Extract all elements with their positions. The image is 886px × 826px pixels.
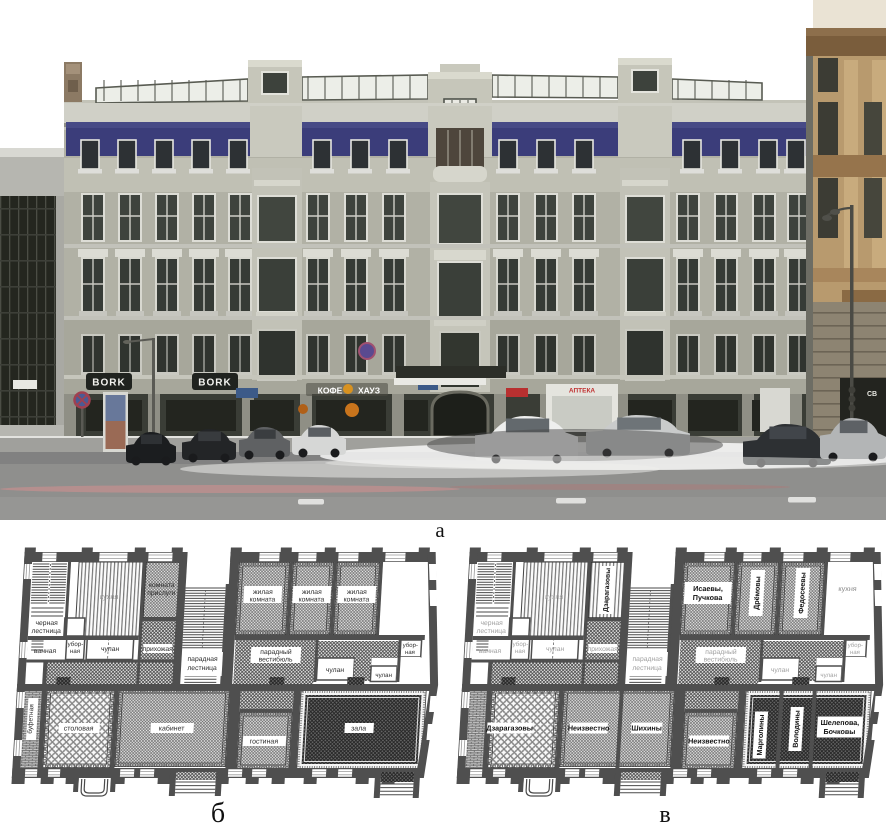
svg-text:ная: ная: [515, 648, 526, 655]
svg-text:комната: комната: [249, 597, 275, 604]
svg-text:лестница: лестница: [476, 628, 506, 635]
svg-text:кабинет: кабинет: [159, 725, 186, 733]
svg-text:чулан: чулан: [771, 667, 790, 674]
svg-text:Исаевы,: Исаевы,: [693, 584, 723, 593]
svg-text:кухня: кухня: [545, 592, 564, 601]
svg-text:кухня: кухня: [100, 592, 119, 601]
svg-text:лестница: лестница: [31, 628, 61, 635]
svg-text:вестибюль: вестибюль: [258, 656, 293, 664]
svg-text:жилая: жилая: [253, 589, 273, 596]
svg-text:черная: черная: [480, 620, 503, 627]
svg-text:прихожая: прихожая: [142, 646, 173, 653]
svg-text:жилая: жилая: [302, 589, 322, 596]
svg-text:убор-: убор-: [67, 641, 83, 648]
svg-text:а: а: [435, 518, 445, 542]
svg-text:ХАУЗ: ХАУЗ: [358, 386, 380, 396]
svg-text:б: б: [211, 798, 225, 826]
svg-text:чулан: чулан: [326, 667, 345, 674]
svg-text:Бочковы: Бочковы: [823, 727, 855, 736]
svg-text:BORK: BORK: [92, 378, 125, 389]
svg-text:Неизвестно: Неизвестно: [568, 724, 611, 733]
svg-text:убор-: убор-: [848, 643, 864, 649]
svg-text:АПТЕКА: АПТЕКА: [569, 388, 596, 395]
svg-text:гостиная: гостиная: [249, 739, 278, 746]
svg-text:Шелепова,: Шелепова,: [820, 718, 859, 727]
svg-text:убор-: убор-: [512, 641, 528, 648]
svg-text:комната: комната: [298, 597, 324, 604]
svg-text:ная: ная: [70, 648, 81, 655]
svg-text:столовая: столовая: [64, 726, 94, 733]
svg-text:BORK: BORK: [198, 378, 231, 389]
svg-text:черная: черная: [35, 620, 58, 627]
svg-text:КОФЕ: КОФЕ: [318, 386, 343, 396]
svg-text:чулан: чулан: [375, 672, 392, 679]
svg-text:кухня: кухня: [838, 584, 857, 593]
svg-text:комната: комната: [343, 597, 369, 604]
svg-text:ная: ная: [405, 650, 415, 656]
svg-text:в: в: [659, 802, 670, 826]
svg-text:зала: зала: [351, 726, 367, 733]
svg-text:комната: комната: [149, 582, 175, 589]
svg-text:прислуги: прислуги: [147, 590, 176, 597]
svg-text:Неизвестно: Неизвестно: [688, 737, 731, 746]
svg-text:лестница: лестница: [632, 665, 662, 672]
svg-text:ванная: ванная: [34, 648, 57, 655]
svg-text:парадная: парадная: [632, 656, 663, 663]
svg-text:чулан: чулан: [820, 672, 837, 679]
svg-text:парадный: парадный: [705, 648, 737, 656]
svg-text:Дзарагазовы: Дзарагазовы: [486, 724, 533, 733]
svg-text:прихожая: прихожая: [587, 646, 618, 653]
svg-text:Шихины: Шихины: [631, 724, 662, 733]
svg-text:ванная: ванная: [479, 648, 502, 655]
svg-text:убор-: убор-: [403, 643, 419, 649]
svg-text:лестница: лестница: [187, 665, 217, 672]
svg-text:ная: ная: [850, 650, 860, 656]
svg-text:жилая: жилая: [347, 589, 367, 596]
svg-text:вестибюль: вестибюль: [703, 656, 738, 664]
svg-text:Дрёмовы: Дрёмовы: [751, 576, 762, 610]
svg-text:Пучкова: Пучкова: [693, 593, 724, 602]
svg-text:парадная: парадная: [187, 656, 218, 663]
svg-text:чулан: чулан: [101, 646, 120, 653]
svg-text:СВ: СВ: [867, 391, 877, 398]
svg-text:чулан: чулан: [546, 646, 565, 653]
svg-text:парадный: парадный: [260, 648, 292, 656]
